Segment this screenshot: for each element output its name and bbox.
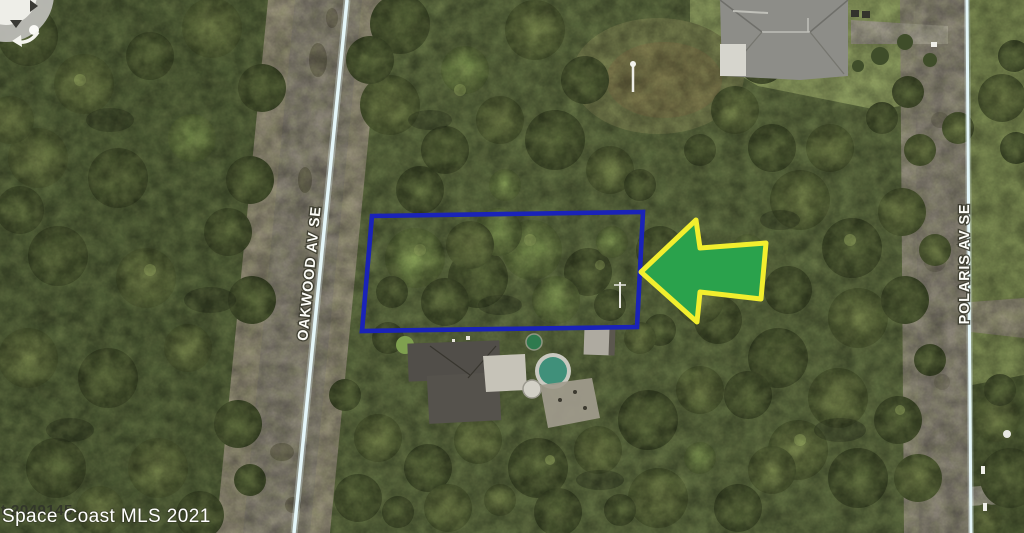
shed bbox=[584, 328, 616, 356]
street-label-polaris: POLARIS AV SE bbox=[957, 204, 973, 325]
pool bbox=[539, 357, 567, 385]
screen-patio bbox=[483, 354, 527, 392]
mailbox bbox=[931, 42, 937, 47]
small-pool bbox=[526, 334, 542, 350]
round-object bbox=[1003, 430, 1011, 438]
aerial-map: OAKWOOD AV SE POLARIS AV SE st 2049145 S… bbox=[0, 0, 1024, 533]
pole-marker-2 bbox=[983, 503, 987, 511]
watermark: Space Coast MLS 2021 bbox=[2, 506, 211, 527]
texture-grain bbox=[0, 0, 1024, 533]
pole-marker bbox=[981, 466, 985, 474]
gazebo bbox=[523, 380, 541, 398]
aerial-listing-photo: OAKWOOD AV SE POLARIS AV SE st 2049145 S… bbox=[0, 0, 1024, 533]
house-wall bbox=[720, 44, 746, 76]
